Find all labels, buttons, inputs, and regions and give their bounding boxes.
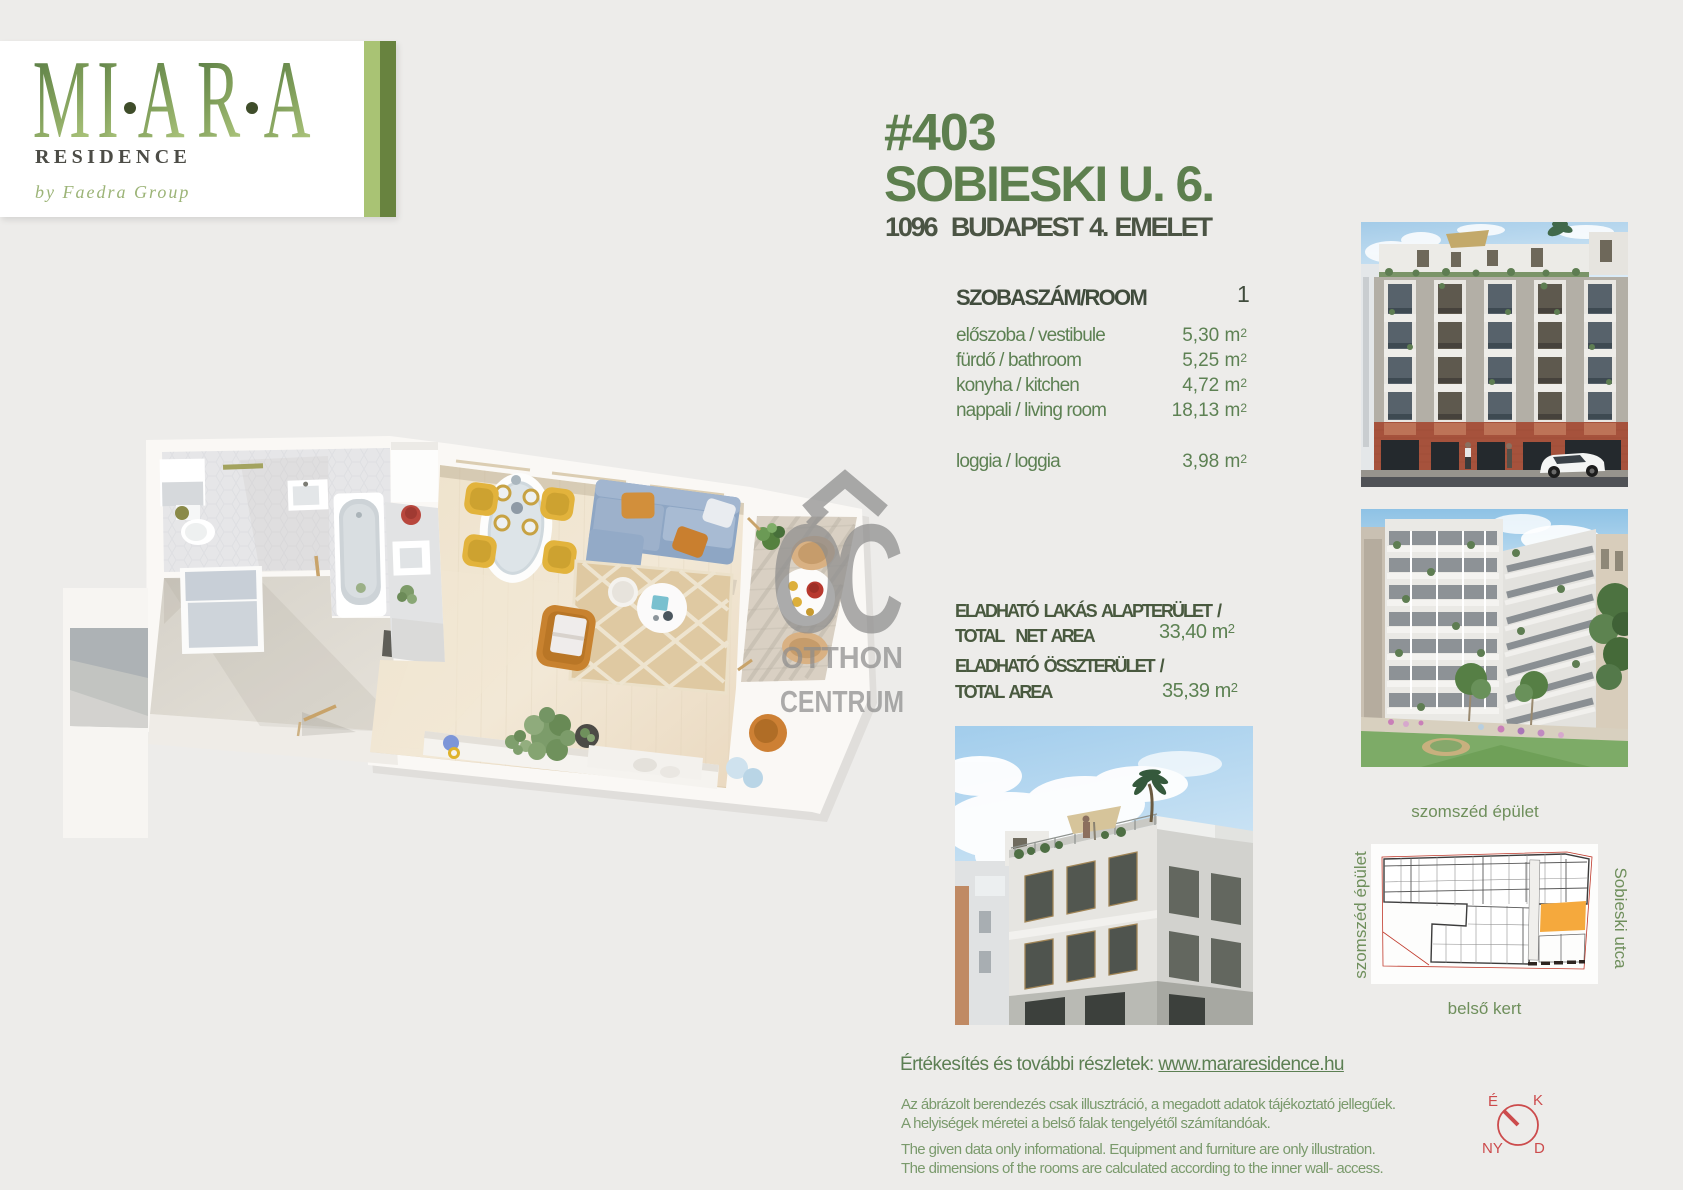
svg-text:D: D	[1534, 1140, 1545, 1157]
svg-text:K: K	[1533, 1092, 1543, 1109]
svg-text:É: É	[1488, 1093, 1498, 1110]
svg-text:I: I	[97, 52, 119, 157]
svg-text:M: M	[33, 52, 91, 157]
svg-text:CENTRUM: CENTRUM	[780, 684, 904, 719]
svg-text:A: A	[138, 52, 185, 157]
svg-text:NY: NY	[1482, 1140, 1503, 1157]
svg-text:A: A	[264, 52, 311, 157]
svg-text:OTTHON: OTTHON	[781, 640, 903, 675]
svg-text:R: R	[197, 52, 240, 157]
